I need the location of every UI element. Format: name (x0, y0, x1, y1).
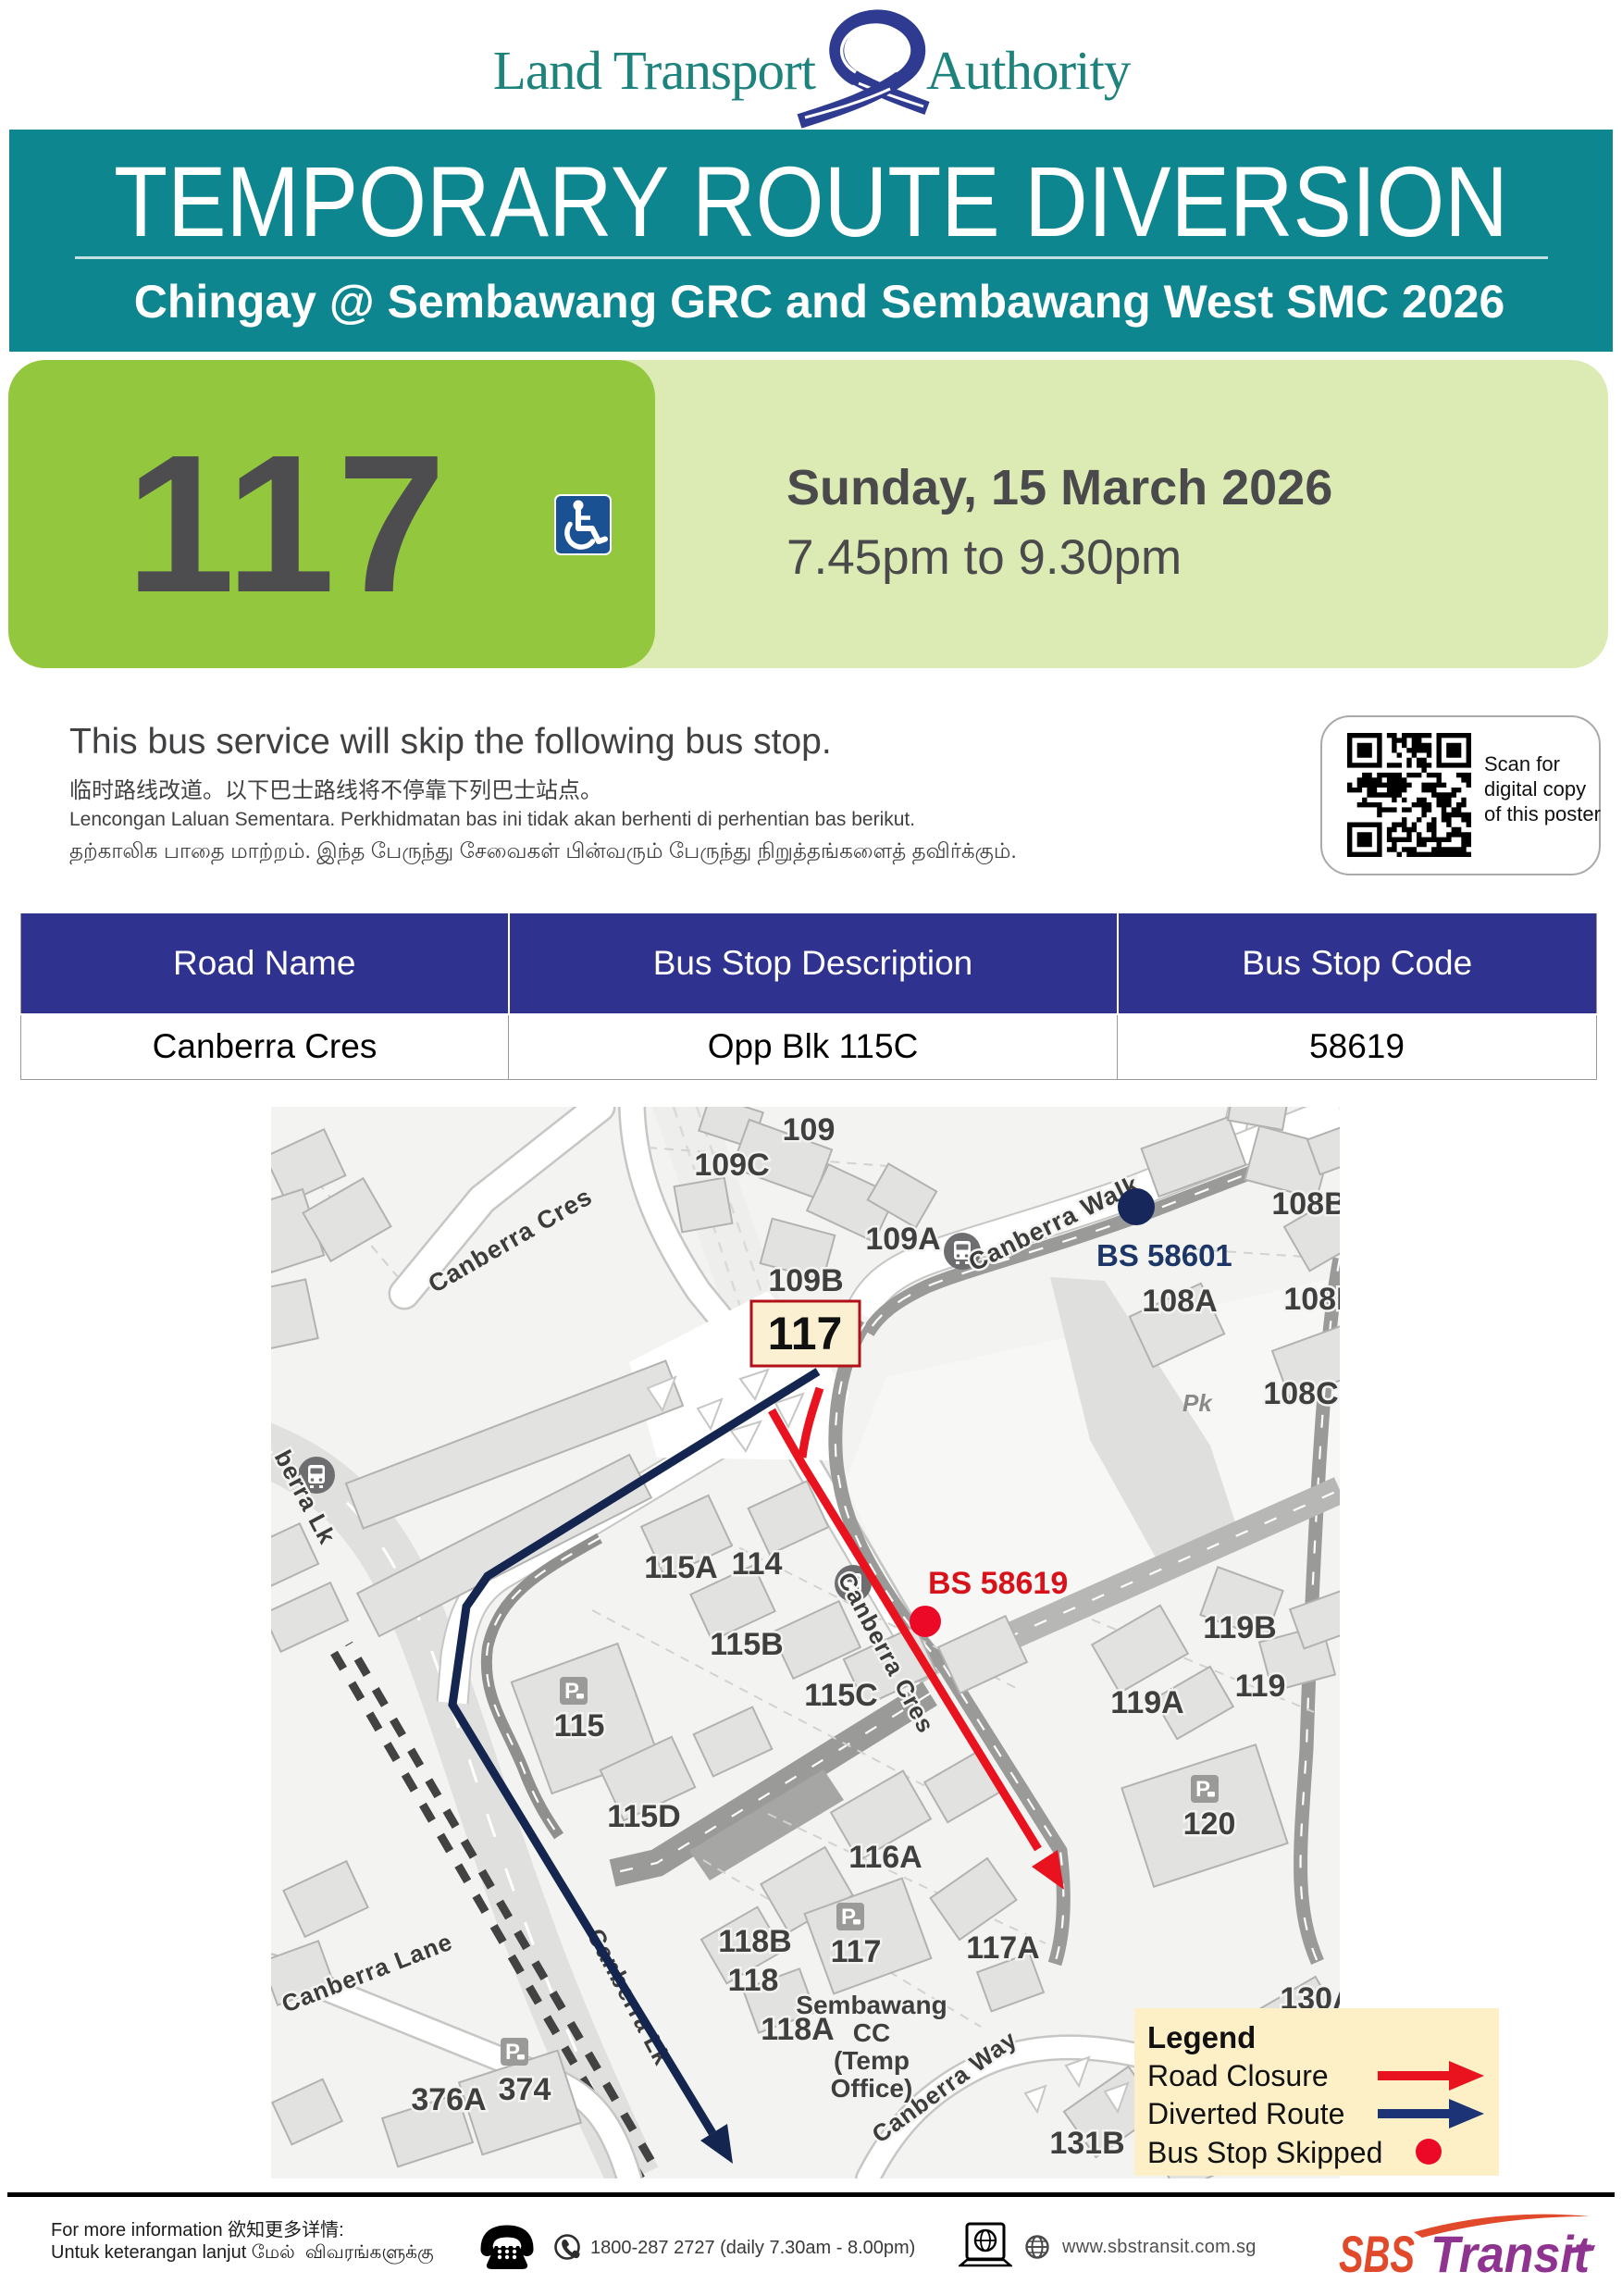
svg-text:115B: 115B (710, 1627, 783, 1662)
svg-text:108D: 108D (1283, 1282, 1358, 1317)
svg-text:117: 117 (831, 1934, 882, 1969)
svg-text:Authority: Authority (926, 40, 1132, 101)
svg-text:Pk: Pk (1182, 1389, 1213, 1417)
svg-text:114: 114 (732, 1546, 783, 1582)
svg-text:1800-287 2727 (daily 7.30am -: 1800-287 2727 (daily 7.30am - 8.00pm) (590, 2238, 915, 2258)
svg-text:120: 120 (1183, 1806, 1236, 1842)
svg-text:108C: 108C (1263, 1376, 1338, 1411)
svg-text:115: 115 (554, 1708, 605, 1744)
svg-text:108A: 108A (1142, 1284, 1217, 1319)
svg-text:119A: 119A (1110, 1685, 1183, 1720)
svg-text:Legend: Legend (1147, 2020, 1256, 2054)
svg-text:P: P (841, 1905, 856, 1930)
svg-text:CC: CC (853, 2018, 890, 2047)
svg-text:374: 374 (499, 2072, 551, 2107)
svg-text:109C: 109C (694, 1148, 769, 1183)
svg-text:BS 58601: BS 58601 (1096, 1238, 1232, 1272)
svg-text:118: 118 (728, 1963, 779, 1998)
svg-text:Transit: Transit (1430, 2225, 1591, 2283)
svg-text:P: P (1195, 1777, 1210, 1802)
svg-text:115C: 115C (804, 1678, 877, 1713)
svg-text:Land Transport: Land Transport (493, 40, 817, 101)
svg-text:(Temp: (Temp (834, 2046, 910, 2075)
svg-text:P: P (564, 1679, 579, 1704)
svg-text:109: 109 (783, 1112, 836, 1148)
svg-text:Bus Stop Skipped: Bus Stop Skipped (1147, 2136, 1382, 2169)
svg-text:Office): Office) (831, 2074, 913, 2103)
svg-text:109A: 109A (865, 1222, 940, 1257)
svg-text:119B: 119B (1203, 1610, 1276, 1645)
svg-text:115D: 115D (607, 1799, 680, 1834)
svg-text:SBS: SBS (1339, 2225, 1415, 2283)
svg-text:P: P (505, 2040, 520, 2065)
svg-text:115A: 115A (644, 1550, 717, 1585)
svg-text:109B: 109B (768, 1263, 843, 1298)
svg-text:Sembawang: Sembawang (796, 1991, 947, 2019)
svg-text:131B: 131B (1049, 2126, 1124, 2161)
svg-text:BS 58619: BS 58619 (928, 1566, 1068, 1601)
svg-text:Road Closure: Road Closure (1147, 2059, 1329, 2092)
svg-text:376A: 376A (411, 2082, 486, 2117)
svg-text:Diverted Route: Diverted Route (1147, 2097, 1344, 2130)
svg-text:118B: 118B (718, 1924, 791, 1959)
svg-text:117A: 117A (966, 1930, 1039, 1966)
svg-text:119: 119 (1235, 1669, 1286, 1704)
svg-text:108B: 108B (1271, 1186, 1346, 1222)
svg-text:116A: 116A (848, 1840, 922, 1875)
svg-text:117: 117 (768, 1308, 843, 1359)
